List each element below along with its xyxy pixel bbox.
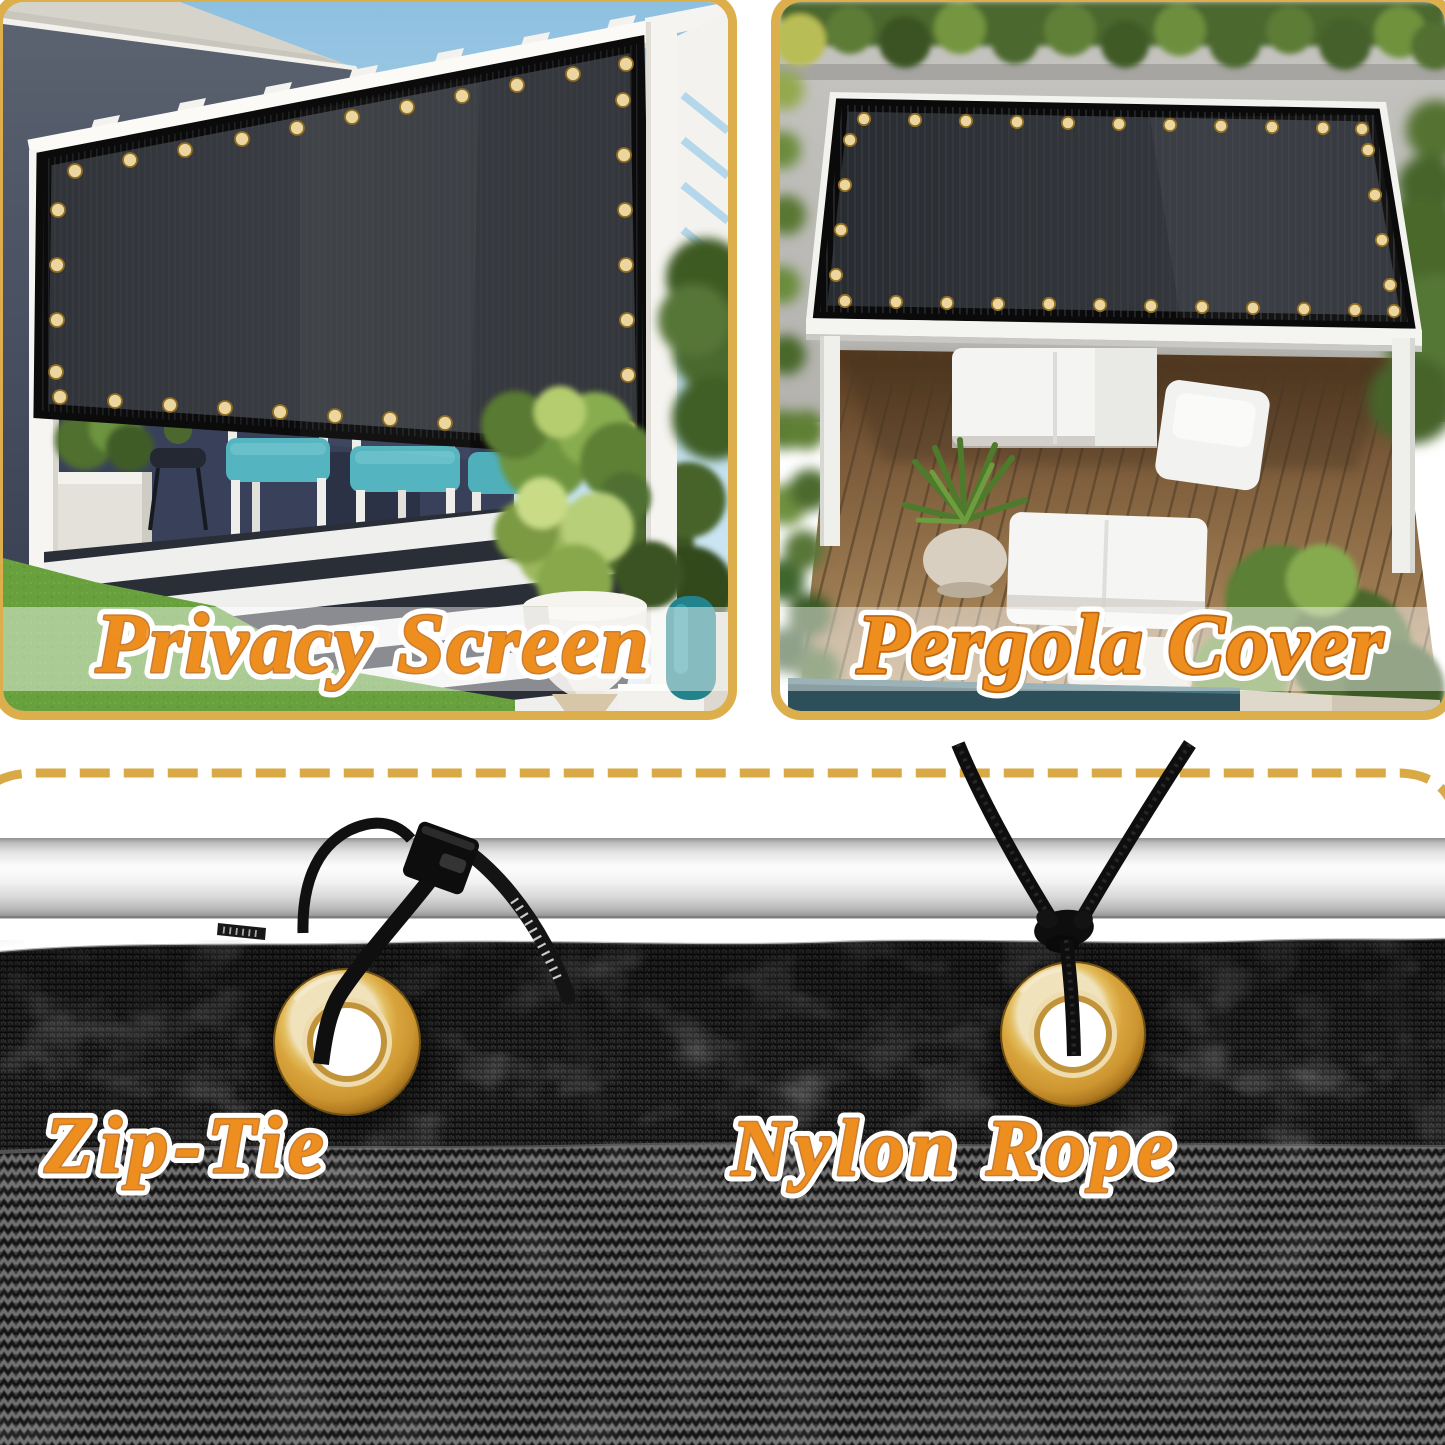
svg-text:Nylon Rope: Nylon Rope bbox=[731, 1105, 1173, 1193]
svg-text:Zip-Tie: Zip-Tie bbox=[44, 1102, 324, 1190]
svg-text:Privacy Screen: Privacy Screen bbox=[95, 595, 649, 691]
svg-text:Pergola Cover: Pergola Cover bbox=[856, 596, 1386, 692]
